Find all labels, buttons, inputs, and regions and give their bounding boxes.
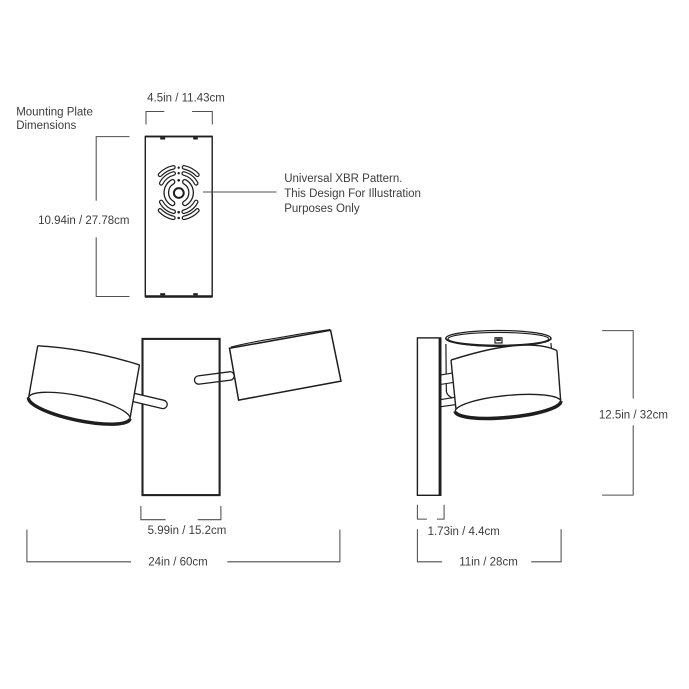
svg-text:Purposes Only: Purposes Only — [284, 203, 360, 215]
svg-text:Dimensions: Dimensions — [16, 120, 76, 132]
svg-text:5.99in / 15.2cm: 5.99in / 15.2cm — [148, 525, 227, 537]
svg-text:1.73in / 4.4cm: 1.73in / 4.4cm — [428, 526, 500, 538]
svg-text:Mounting Plate: Mounting Plate — [16, 107, 93, 119]
svg-text:24in / 60cm: 24in / 60cm — [148, 557, 207, 569]
svg-text:11in / 28cm: 11in / 28cm — [459, 557, 518, 569]
svg-text:This Design For Illustration: This Design For Illustration — [284, 188, 421, 200]
svg-text:10.94in / 27.78cm: 10.94in / 27.78cm — [38, 215, 129, 227]
svg-text:4.5in / 11.43cm: 4.5in / 11.43cm — [147, 93, 225, 105]
svg-text:Universal XBR Pattern.: Universal XBR Pattern. — [284, 173, 402, 185]
svg-text:12.5in / 32cm: 12.5in / 32cm — [599, 410, 668, 422]
